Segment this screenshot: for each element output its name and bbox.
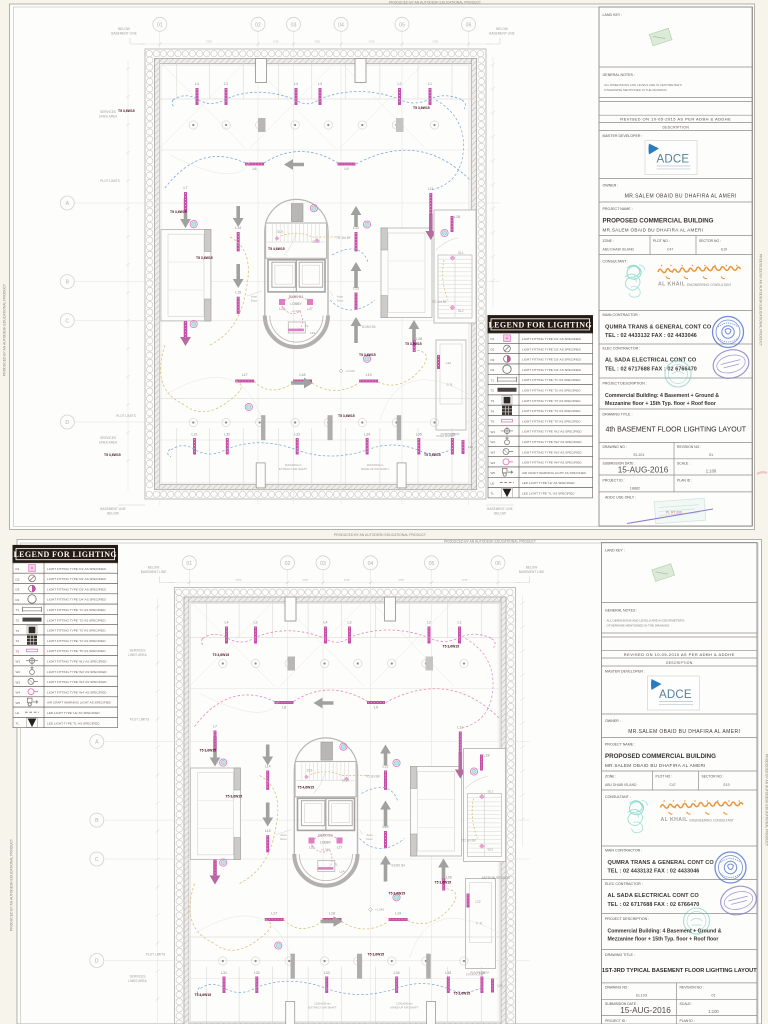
svg-text:01: 01 (186, 561, 192, 567)
svg-text:MOTION SENSOR: MOTION SENSOR (482, 876, 511, 880)
svg-text:L18: L18 (300, 373, 306, 377)
svg-text:T2: T2 (491, 389, 495, 393)
svg-text:PROJECT NAME :: PROJECT NAME : (605, 743, 635, 747)
svg-text:L33: L33 (324, 971, 330, 975)
svg-text:Mezzanine floor + 15th Typ. fl: Mezzanine floor + 15th Typ. floor + Roof… (605, 401, 716, 407)
svg-text:SCALE :: SCALE : (680, 1002, 693, 1006)
svg-text:L35: L35 (416, 433, 422, 437)
svg-text:T5 3,6W15: T5 3,6W15 (196, 256, 213, 260)
svg-text:ABU DHABI ISLAND: ABU DHABI ISLAND (603, 248, 635, 252)
svg-text:L9: L9 (374, 706, 378, 710)
svg-text:LIGHT FITTING TYPE 'D3' AS SPE: LIGHT FITTING TYPE 'D3' AS SPECIFIED (47, 587, 107, 591)
svg-text:TO 3rd BF: TO 3rd BF (462, 839, 477, 843)
svg-text:SL1: SL1 (458, 251, 464, 255)
svg-text:A: A (95, 740, 99, 746)
svg-text:PROJECT DESCRIPTION :: PROJECT DESCRIPTION : (605, 917, 649, 921)
svg-text:LIGHT FITTING TYPE 'D2' AS SPE: LIGHT FITTING TYPE 'D2' AS SPECIFIED (47, 577, 107, 581)
svg-text:AL KHAIL: AL KHAIL (658, 282, 686, 288)
svg-text:L15: L15 (235, 291, 241, 295)
svg-text:AL KHAIL: AL KHAIL (661, 817, 689, 823)
svg-text:REVISION NO :: REVISION NO : (677, 445, 701, 449)
svg-text:PLOT LIMITS: PLOT LIMITS (116, 414, 135, 418)
svg-text:ABU DHABI ISLAND: ABU DHABI ISLAND (605, 783, 637, 787)
svg-text:T5 3,6W15: T5 3,6W15 (424, 453, 441, 457)
svg-text:2750: 2750 (462, 578, 468, 582)
svg-text:BASEMENT LINE: BASEMENT LINE (100, 507, 125, 511)
svg-text:W2: W2 (491, 440, 496, 444)
svg-text:LIGHT FITTING TYPE 'D2' AS SPE: LIGHT FITTING TYPE 'D2' AS SPECIFIED (522, 347, 582, 351)
svg-text:T3: T3 (491, 399, 495, 403)
svg-text:SERVICES: SERVICES (129, 975, 145, 979)
svg-text:L22: L22 (476, 900, 481, 904)
svg-text:02: 02 (255, 22, 261, 28)
svg-text:LIGHT FITTING TYPE 'T4' AS SPE: LIGHT FITTING TYPE 'T4' AS SPECIFIED (522, 409, 581, 413)
svg-text:BELOW: BELOW (494, 512, 506, 516)
svg-text:T5 3,6W15: T5 3,6W15 (338, 414, 355, 418)
svg-text:LIGHT FITTING TYPE 'W4' AS SPE: LIGHT FITTING TYPE 'W4' AS SPECIFIED (522, 461, 582, 465)
svg-text:BELOW: BELOW (118, 27, 130, 31)
svg-text:LINES AREA: LINES AREA (99, 115, 118, 119)
svg-text:MASTER DEVELOPER :: MASTER DEVELOPER : (605, 670, 645, 674)
svg-text:B: B (95, 818, 99, 824)
svg-text:CONSULTANT :: CONSULTANT : (603, 260, 629, 264)
svg-text:Door: Door (251, 299, 258, 303)
svg-text:OTHERWISE MENTIONED IN THE DRA: OTHERWISE MENTIONED IN THE DRAWING (607, 624, 670, 628)
svg-text:L31: L31 (192, 433, 198, 437)
svg-text:LIGHT FITTING TYPE 'W3' AS SPE: LIGHT FITTING TYPE 'W3' AS SPECIFIED (522, 450, 582, 454)
svg-text:LAND KEY :: LAND KEY : (605, 549, 625, 553)
svg-text:02: 02 (285, 561, 291, 567)
svg-text:L22: L22 (446, 361, 451, 365)
svg-text:2750: 2750 (432, 40, 438, 44)
svg-text:L7: L7 (184, 186, 188, 190)
svg-text:SERVICES: SERVICES (129, 649, 145, 653)
svg-text:+1.040: +1.040 (291, 309, 301, 313)
svg-text:T4: T4 (16, 639, 20, 643)
svg-text:DRAWING NO :: DRAWING NO : (603, 445, 627, 449)
svg-text:LINES AREA: LINES AREA (128, 979, 147, 983)
svg-text:LIGHT FITTING TYPE 'W1' AS SPE: LIGHT FITTING TYPE 'W1' AS SPECIFIED (47, 660, 107, 664)
svg-text:+1.040: +1.040 (375, 908, 385, 912)
svg-text:OWNER :: OWNER : (603, 184, 619, 188)
svg-text:LED LIGHT TYPE 'LE' AS SPECIFI: LED LIGHT TYPE 'LE' AS SPECIFIED (522, 481, 575, 485)
svg-text:04: 04 (338, 22, 344, 28)
svg-text:TEL : 02 6717688 FAX : 02 6766: TEL : 02 6717688 FAX : 02 6766470 (605, 366, 697, 372)
svg-text:2750: 2750 (398, 578, 404, 582)
svg-text:LIGHT FITTING TYPE 'T3' AS SPE: LIGHT FITTING TYPE 'T3' AS SPECIFIED (47, 629, 106, 633)
svg-text:T5 4,6W15: T5 4,6W15 (298, 786, 315, 790)
svg-text:ADCE: ADCE (657, 154, 690, 166)
svg-text:TL: TL (335, 863, 339, 867)
svg-text:EL103: EL103 (636, 994, 647, 998)
svg-text:DRAWING TITLE :: DRAWING TITLE : (603, 413, 633, 417)
svg-text:MR.SALEM OBAID BU DHAFIRA: MR.SALEM OBAID BU DHAFIRA AL AMERI (625, 194, 737, 200)
svg-text:T5 3,6W15: T5 3,6W15 (405, 342, 422, 346)
svg-text:L8: L8 (253, 167, 257, 171)
svg-text:LAND KEY :: LAND KEY : (603, 13, 623, 17)
svg-text:ENGINEERING CONSULTANT: ENGINEERING CONSULTANT (687, 283, 731, 287)
svg-text:T5 3,6W15: T5 3,6W15 (413, 106, 430, 110)
svg-text:L28: L28 (446, 876, 452, 880)
svg-text:ENGINEERING CONSULTANT: ENGINEERING CONSULTANT (690, 819, 734, 823)
svg-text:QUMRA TRANS & GENERAL CONT CO: QUMRA TRANS & GENERAL CONT CO (605, 325, 712, 331)
svg-text:Commercial Building: 4 Basemen: Commercial Building: 4 Basement + Ground… (608, 928, 722, 934)
svg-text:TEL : 02 4433132 FAX : 02 4433: TEL : 02 4433132 FAX : 02 4433046 (608, 869, 700, 875)
svg-text:18882: 18882 (630, 487, 641, 491)
svg-text:TL: TL (491, 492, 495, 496)
svg-text:Commercial Building: 4 Basemen: Commercial Building: 4 Basement + Ground… (605, 393, 719, 399)
svg-text:B1/B0 B4: B1/B0 B4 (362, 325, 376, 329)
svg-text:EXTRACT AIR SHAFT: EXTRACT AIR SHAFT (308, 1006, 337, 1010)
svg-text:ALL DIMENSIONS AND LEVELS ARE: ALL DIMENSIONS AND LEVELS ARE IN CENTIME… (604, 83, 682, 87)
svg-text:T5 3,6W15: T5 3,6W15 (454, 992, 471, 996)
svg-text:LEGEND FOR LIGHTING: LEGEND FOR LIGHTING (488, 320, 592, 329)
svg-text:T5 3,6W15: T5 3,6W15 (443, 645, 460, 649)
svg-text:L3: L3 (224, 82, 228, 86)
svg-text:Door: Door (366, 837, 373, 841)
svg-text:AL SADA ELECTRICAL CONT CO: AL SADA ELECTRICAL CONT CO (608, 893, 700, 899)
svg-text:ELEC CONTRACTOR :: ELEC CONTRACTOR : (603, 347, 641, 351)
svg-text:ZONE :: ZONE : (603, 239, 614, 243)
svg-text:L33: L33 (294, 433, 300, 437)
svg-text:03: 03 (320, 561, 326, 567)
svg-text:2750: 2750 (369, 40, 375, 44)
svg-text:LIGHT FITTING TYPE 'W3' AS SPE: LIGHT FITTING TYPE 'W3' AS SPECIFIED (47, 680, 107, 684)
svg-text:E19: E19 (721, 248, 727, 252)
svg-text:01: 01 (711, 994, 715, 998)
svg-text:SECTOR NO :: SECTOR NO : (699, 239, 721, 243)
svg-text:MAIN CONTRACTOR :: MAIN CONTRACTOR : (605, 849, 642, 853)
svg-text:ADCE: ADCE (659, 689, 692, 701)
svg-text:LED LIGHT TYPE 'TL' AS SPECIFI: LED LIGHT TYPE 'TL' AS SPECIFIED (522, 492, 575, 496)
svg-text:L17: L17 (242, 373, 248, 377)
svg-text:MAKE-UP AIR SHAFT: MAKE-UP AIR SHAFT (361, 467, 389, 471)
svg-text:L32: L32 (254, 971, 260, 975)
svg-text:STAIR ROOM: STAIR ROOM (466, 973, 484, 977)
svg-text:1ST-3RD TYPICAL BASEMENT FLOO: 1ST-3RD TYPICAL BASEMENT FLOOR LIGHTING … (602, 968, 757, 974)
svg-text:PLAN ID :: PLAN ID : (677, 479, 692, 483)
svg-text:L18: L18 (454, 215, 460, 219)
svg-text:2750: 2750 (344, 578, 350, 582)
svg-text:T5 3,6W15: T5 3,6W15 (389, 892, 406, 896)
svg-text:MAIN CONTRACTOR :: MAIN CONTRACTOR : (603, 313, 640, 317)
svg-text:2750: 2750 (206, 40, 212, 44)
svg-text:+1.040: +1.040 (321, 848, 331, 852)
svg-text:L26: L26 (279, 307, 285, 311)
svg-text:DESCRIPTION: DESCRIPTION (666, 661, 693, 665)
svg-text:SL2: SL2 (458, 309, 464, 313)
svg-text:T5 3,6W15: T5 3,6W15 (104, 453, 121, 457)
svg-text:03: 03 (291, 22, 297, 28)
svg-text:D: D (95, 959, 99, 965)
svg-text:T5 3,6W15: T5 3,6W15 (435, 881, 452, 885)
svg-text:L27: L27 (307, 307, 313, 311)
svg-text:PROJECT DESCRIPTION :: PROJECT DESCRIPTION : (603, 381, 647, 385)
svg-text:REVISION NO :: REVISION NO : (680, 986, 704, 990)
svg-text:L1: L1 (458, 621, 462, 625)
svg-text:SERVICES: SERVICES (100, 110, 116, 114)
svg-text:15-AUG-2016: 15-AUG-2016 (618, 466, 669, 475)
svg-text:D1: D1 (16, 567, 20, 571)
svg-text:MR.SALEM OBAID BU DHAFIRA: MR.SALEM OBAID BU DHAFIRA AL AMERI (603, 228, 704, 233)
svg-text:2750: 2750 (314, 40, 320, 44)
svg-text:L4: L4 (324, 621, 328, 625)
svg-text:ZONE :: ZONE : (605, 775, 616, 779)
svg-text:LOBBY: LOBBY (290, 302, 302, 306)
svg-text:PLOT NO :: PLOT NO : (653, 239, 670, 243)
svg-text:L27: L27 (337, 846, 343, 850)
svg-text:C: C (65, 319, 69, 325)
svg-text:T5 3,6W15: T5 3,6W15 (213, 653, 230, 657)
svg-text:L19: L19 (366, 373, 372, 377)
svg-text:BASEMENT LINE: BASEMENT LINE (489, 32, 514, 36)
svg-text:T5: T5 (16, 649, 20, 653)
svg-text:4th BASEMENT FLOOR LIGHTING LA: 4th BASEMENT FLOOR LIGHTING LAYOUT (605, 427, 746, 434)
svg-text:LIGHT FITTING TYPE 'W1' AS SPE: LIGHT FITTING TYPE 'W1' AS SPECIFIED (522, 430, 582, 434)
svg-text:LIGHT FITTING TYPE 'T2' AS SPE: LIGHT FITTING TYPE 'T2' AS SPECIFIED (47, 618, 106, 622)
svg-text:L3: L3 (318, 82, 322, 86)
svg-text:L19: L19 (395, 912, 401, 916)
svg-text:01: 01 (157, 22, 163, 28)
svg-text:PROPOSED COMMERCIAL BUILDING: PROPOSED COMMERCIAL BUILDING (605, 753, 716, 760)
svg-text:SCALE :: SCALE : (677, 462, 690, 466)
svg-text:CONSULTANT :: CONSULTANT : (605, 795, 631, 799)
svg-text:TEL : 02 4433132 FAX : 02 4433: TEL : 02 4433132 FAX : 02 4433046 (605, 333, 697, 339)
svg-text:DRAWING NO :: DRAWING NO : (605, 986, 629, 990)
svg-text:L2: L2 (427, 621, 431, 625)
svg-text:Door: Door (337, 299, 344, 303)
svg-text:LIGHT FITTING TYPE 'T4' AS SPE: LIGHT FITTING TYPE 'T4' AS SPECIFIED (47, 639, 106, 643)
svg-text:L4: L4 (294, 82, 298, 86)
svg-text:C47: C47 (670, 783, 676, 787)
svg-text:T4: T4 (491, 409, 495, 413)
svg-text:LE: LE (16, 711, 20, 715)
svg-text:T2: T2 (16, 619, 20, 623)
svg-text:W1: W1 (491, 430, 496, 434)
svg-text:PROJECT NAME :: PROJECT NAME : (603, 207, 633, 211)
svg-text:T5: T5 (491, 420, 495, 424)
svg-text:L11: L11 (428, 187, 434, 191)
svg-text:PRODUCED BY AN AUTODESK EDUCAT: PRODUCED BY AN AUTODESK EDUCATIONAL PROD… (10, 839, 14, 931)
svg-text:1:100: 1:100 (706, 469, 717, 474)
svg-text:TL: TL (16, 722, 20, 726)
svg-text:PLOT LIMITS: PLOT LIMITS (100, 179, 119, 183)
svg-text:L4: L4 (225, 621, 229, 625)
svg-text:T5 3,6W15: T5 3,6W15 (226, 795, 243, 799)
svg-text:ALL DIMENSIONS AND LEVELS ARE: ALL DIMENSIONS AND LEVELS ARE IN CENTIME… (607, 619, 685, 623)
svg-text:SL9: SL9 (277, 230, 283, 234)
svg-text:SL2: SL2 (488, 848, 494, 852)
svg-text:L11: L11 (457, 726, 463, 730)
svg-text:L18: L18 (484, 754, 490, 758)
svg-text:Mezzanine floor + 15th Typ. fl: Mezzanine floor + 15th Typ. floor + Roof… (608, 936, 719, 942)
svg-text:SERVICES: SERVICES (100, 436, 116, 440)
svg-text:W3: W3 (491, 451, 496, 455)
svg-text:L2: L2 (398, 82, 402, 86)
svg-text:PRODUCED BY AN AUTODESK EDUCAT: PRODUCED BY AN AUTODESK EDUCATIONAL PROD… (444, 540, 536, 544)
svg-text:SL9: SL9 (307, 769, 313, 773)
svg-text:LIGHT FITTING TYPE 'W2' AS SPE: LIGHT FITTING TYPE 'W2' AS SPECIFIED (522, 440, 582, 444)
svg-text:ADDC USE ONLY :: ADDC USE ONLY : (605, 496, 636, 500)
svg-text:PRODUCED BY AN AUTODESK EDUCAT: PRODUCED BY AN AUTODESK EDUCATIONAL PROD… (389, 1, 481, 5)
svg-text:LINES AREA: LINES AREA (99, 441, 118, 445)
svg-text:LIGHT FITTING TYPE 'D4' AS SPE: LIGHT FITTING TYPE 'D4' AS SPECIFIED (47, 598, 107, 602)
svg-text:GENERAL NOTES :: GENERAL NOTES : (605, 609, 637, 613)
svg-text:2750: 2750 (273, 40, 279, 44)
svg-text:T5 3,6W15: T5 3,6W15 (368, 953, 385, 957)
svg-text:LIGHT FITTING TYPE 'W4' AS SPE: LIGHT FITTING TYPE 'W4' AS SPECIFIED (47, 690, 107, 694)
svg-text:T3: T3 (16, 629, 20, 633)
svg-text:T1: T1 (16, 608, 20, 612)
svg-text:C: C (95, 857, 99, 863)
svg-text:Pl. RT 209: Pl. RT 209 (666, 511, 682, 515)
svg-text:LEGEND FOR LIGHTING: LEGEND FOR LIGHTING (13, 550, 117, 559)
svg-text:W3: W3 (16, 680, 21, 684)
svg-text:BELOW: BELOW (496, 27, 508, 31)
svg-text:L35: L35 (445, 971, 451, 975)
svg-text:06: 06 (466, 22, 472, 28)
svg-text:LOBBY: LOBBY (320, 841, 332, 845)
svg-text:+1.040: +1.040 (345, 369, 355, 373)
svg-text:D1: D1 (491, 337, 495, 341)
svg-text:1:100: 1:100 (708, 1009, 719, 1014)
svg-text:STAIR ROOM: STAIR ROOM (436, 434, 454, 438)
svg-text:D2: D2 (491, 348, 495, 352)
svg-text:OTHERWISE MENTIONED IN THE DRA: OTHERWISE MENTIONED IN THE DRAWING (604, 88, 667, 92)
svg-text:PLOT NO :: PLOT NO : (656, 775, 673, 779)
svg-text:EL101: EL101 (634, 453, 645, 457)
svg-text:PRODUCED BY AN AUTODESK EDUCAT: PRODUCED BY AN AUTODESK EDUCATIONAL PROD… (759, 254, 763, 346)
svg-text:TO 3rd BF: TO 3rd BF (336, 236, 351, 240)
svg-text:PLOT LIMITS: PLOT LIMITS (130, 718, 149, 722)
svg-text:L3: L3 (254, 621, 258, 625)
svg-text:OWNER :: OWNER : (605, 719, 621, 723)
svg-text:L24: L24 (340, 870, 345, 874)
svg-text:PLOT LIMITS: PLOT LIMITS (146, 953, 165, 957)
svg-text:PRODUCED BY AN AUTODESK EDUCAT: PRODUCED BY AN AUTODESK EDUCATIONAL PROD… (765, 754, 768, 846)
svg-text:LED LIGHT TYPE 'LE' AS SPECIFI: LED LIGHT TYPE 'LE' AS SPECIFIED (47, 711, 100, 715)
svg-text:MAKE-UP AIR SHAFT: MAKE-UP AIR SHAFT (391, 1006, 419, 1010)
svg-text:L7: L7 (213, 725, 217, 729)
svg-text:LIGHT FITTING TYPE 'D1' AS SPE: LIGHT FITTING TYPE 'D1' AS SPECIFIED (47, 567, 107, 571)
svg-text:W5: W5 (491, 471, 496, 475)
svg-text:SL1: SL1 (488, 790, 494, 794)
svg-text:T5 3,6W15: T5 3,6W15 (359, 353, 376, 357)
svg-text:ELEC CONTRACTOR :: ELEC CONTRACTOR : (605, 882, 643, 886)
svg-text:TO 3rd BF: TO 3rd BF (366, 775, 381, 779)
svg-text:L31: L31 (221, 971, 227, 975)
svg-text:LE: LE (491, 481, 495, 485)
svg-text:01: 01 (709, 453, 713, 457)
svg-text:REVISED ON 10-05-2015 AS PER A: REVISED ON 10-05-2015 AS PER ADBH & ADDH… (620, 117, 731, 122)
svg-text:W4: W4 (16, 691, 21, 695)
svg-text:L17: L17 (271, 912, 277, 916)
svg-text:D4: D4 (16, 598, 20, 602)
svg-text:BELOW: BELOW (526, 566, 538, 570)
svg-text:PRODUCED BY AN AUTODESK EDUCAT: PRODUCED BY AN AUTODESK EDUCATIONAL PROD… (334, 533, 426, 537)
svg-text:PROJECT ID :: PROJECT ID : (605, 1019, 627, 1023)
svg-text:D: D (65, 420, 69, 426)
svg-text:REVISED ON 10-05-2015 AS PER A: REVISED ON 10-05-2015 AS PER ADBH & ADDH… (624, 652, 735, 657)
svg-text:B: B (66, 280, 70, 286)
svg-text:MR.SALEM OBAID BU DHAFIRA: MR.SALEM OBAID BU DHAFIRA AL AMERI (605, 763, 706, 768)
svg-text:B1/B0 B4: B1/B0 B4 (392, 864, 406, 868)
svg-text:2750: 2750 (236, 578, 242, 582)
svg-text:L9: L9 (345, 167, 349, 171)
svg-text:LIGHT FITTING TYPE 'D1' AS SPE: LIGHT FITTING TYPE 'D1' AS SPECIFIED (522, 337, 582, 341)
svg-text:L8: L8 (282, 706, 286, 710)
svg-text:L26: L26 (468, 445, 473, 449)
svg-text:2750: 2750 (302, 578, 308, 582)
svg-text:LIGHT FITTING TYPE 'T1' AS SPE: LIGHT FITTING TYPE 'T1' AS SPECIFIED (522, 378, 581, 382)
svg-text:L4: L4 (195, 82, 199, 86)
svg-text:D2: D2 (16, 577, 20, 581)
svg-text:MASTER DEVELOPER :: MASTER DEVELOPER : (603, 134, 643, 138)
svg-text:L28: L28 (416, 337, 422, 341)
svg-text:T5 3,6W15: T5 3,6W15 (118, 109, 135, 113)
svg-text:SECTOR NO :: SECTOR NO : (702, 775, 724, 779)
svg-text:LIGHT FITTING TYPE 'T1' AS SPE: LIGHT FITTING TYPE 'T1' AS SPECIFIED (47, 608, 106, 612)
svg-text:D3: D3 (491, 358, 495, 362)
svg-text:05: 05 (399, 22, 405, 28)
svg-text:D4: D4 (491, 368, 495, 372)
svg-text:W2: W2 (16, 670, 21, 674)
svg-text:D3: D3 (16, 588, 20, 592)
svg-text:BELOW: BELOW (107, 512, 119, 516)
svg-text:Door: Door (280, 837, 287, 841)
svg-text:DESCRIPTION: DESCRIPTION (663, 126, 690, 130)
svg-text:AIR CRAFT WARNING LIGHT AS SP: AIR CRAFT WARNING LIGHT AS SPECIFIED (522, 471, 587, 475)
svg-text:L3: L3 (348, 621, 352, 625)
svg-text:BASEMENT LINE: BASEMENT LINE (111, 32, 136, 36)
svg-text:MR.SALEM OBAID BU DHAFIRA: MR.SALEM OBAID BU DHAFIRA AL AMERI (628, 729, 740, 735)
svg-text:AIR CRAFT WARNING LIGHT AS SP: AIR CRAFT WARNING LIGHT AS SPECIFIED (47, 701, 112, 705)
svg-text:L34: L34 (394, 971, 400, 975)
svg-text:L24: L24 (310, 331, 315, 335)
svg-text:PLAN ID :: PLAN ID : (680, 1019, 695, 1023)
svg-text:W5: W5 (16, 701, 21, 705)
svg-text:LED LIGHT TYPE 'TL' AS SPECIFI: LED LIGHT TYPE 'TL' AS SPECIFIED (47, 721, 100, 725)
svg-text:15-AUG-2016: 15-AUG-2016 (620, 1006, 671, 1015)
svg-text:BASEMENT LINE: BASEMENT LINE (519, 570, 544, 574)
svg-text:B1/B0 B4: B1/B0 B4 (318, 834, 332, 838)
svg-text:EXTRACT AIR SHAFT: EXTRACT AIR SHAFT (279, 467, 308, 471)
svg-text:LINES AREA: LINES AREA (128, 653, 147, 657)
svg-text:C47: C47 (667, 248, 673, 252)
svg-text:L18: L18 (329, 912, 335, 916)
svg-text:BASEMENT LINE: BASEMENT LINE (141, 570, 166, 574)
svg-text:05: 05 (429, 561, 435, 567)
svg-text:A: A (66, 201, 70, 207)
svg-text:TO 3rd BF: TO 3rd BF (432, 300, 447, 304)
svg-text:PRODUCED BY AN AUTODESK EDUCAT: PRODUCED BY AN AUTODESK EDUCATIONAL PROD… (3, 284, 7, 376)
svg-text:QUMRA TRANS & GENERAL CONT CO: QUMRA TRANS & GENERAL CONT CO (608, 860, 715, 866)
svg-text:06: 06 (495, 561, 501, 567)
svg-text:DRAWING TITLE :: DRAWING TITLE : (605, 953, 635, 957)
svg-text:PROJECT ID :: PROJECT ID : (603, 479, 625, 483)
svg-text:GENERAL NOTES :: GENERAL NOTES : (603, 73, 635, 77)
svg-text:TL: TL (305, 324, 309, 328)
svg-text:BELOW: BELOW (148, 566, 160, 570)
svg-text:W1: W1 (16, 660, 21, 664)
svg-text:L26: L26 (309, 846, 315, 850)
svg-text:PROPOSED COMMERCIAL BUILDING: PROPOSED COMMERCIAL BUILDING (603, 218, 714, 225)
svg-text:04: 04 (368, 561, 374, 567)
svg-text:TEL : 02 6717688 FAX : 02 6766: TEL : 02 6717688 FAX : 02 6766470 (608, 902, 700, 908)
svg-text:T5 3,6W15: T5 3,6W15 (195, 993, 212, 997)
svg-text:T5 3,6W15: T5 3,6W15 (170, 210, 187, 214)
svg-text:T1: T1 (491, 378, 495, 382)
